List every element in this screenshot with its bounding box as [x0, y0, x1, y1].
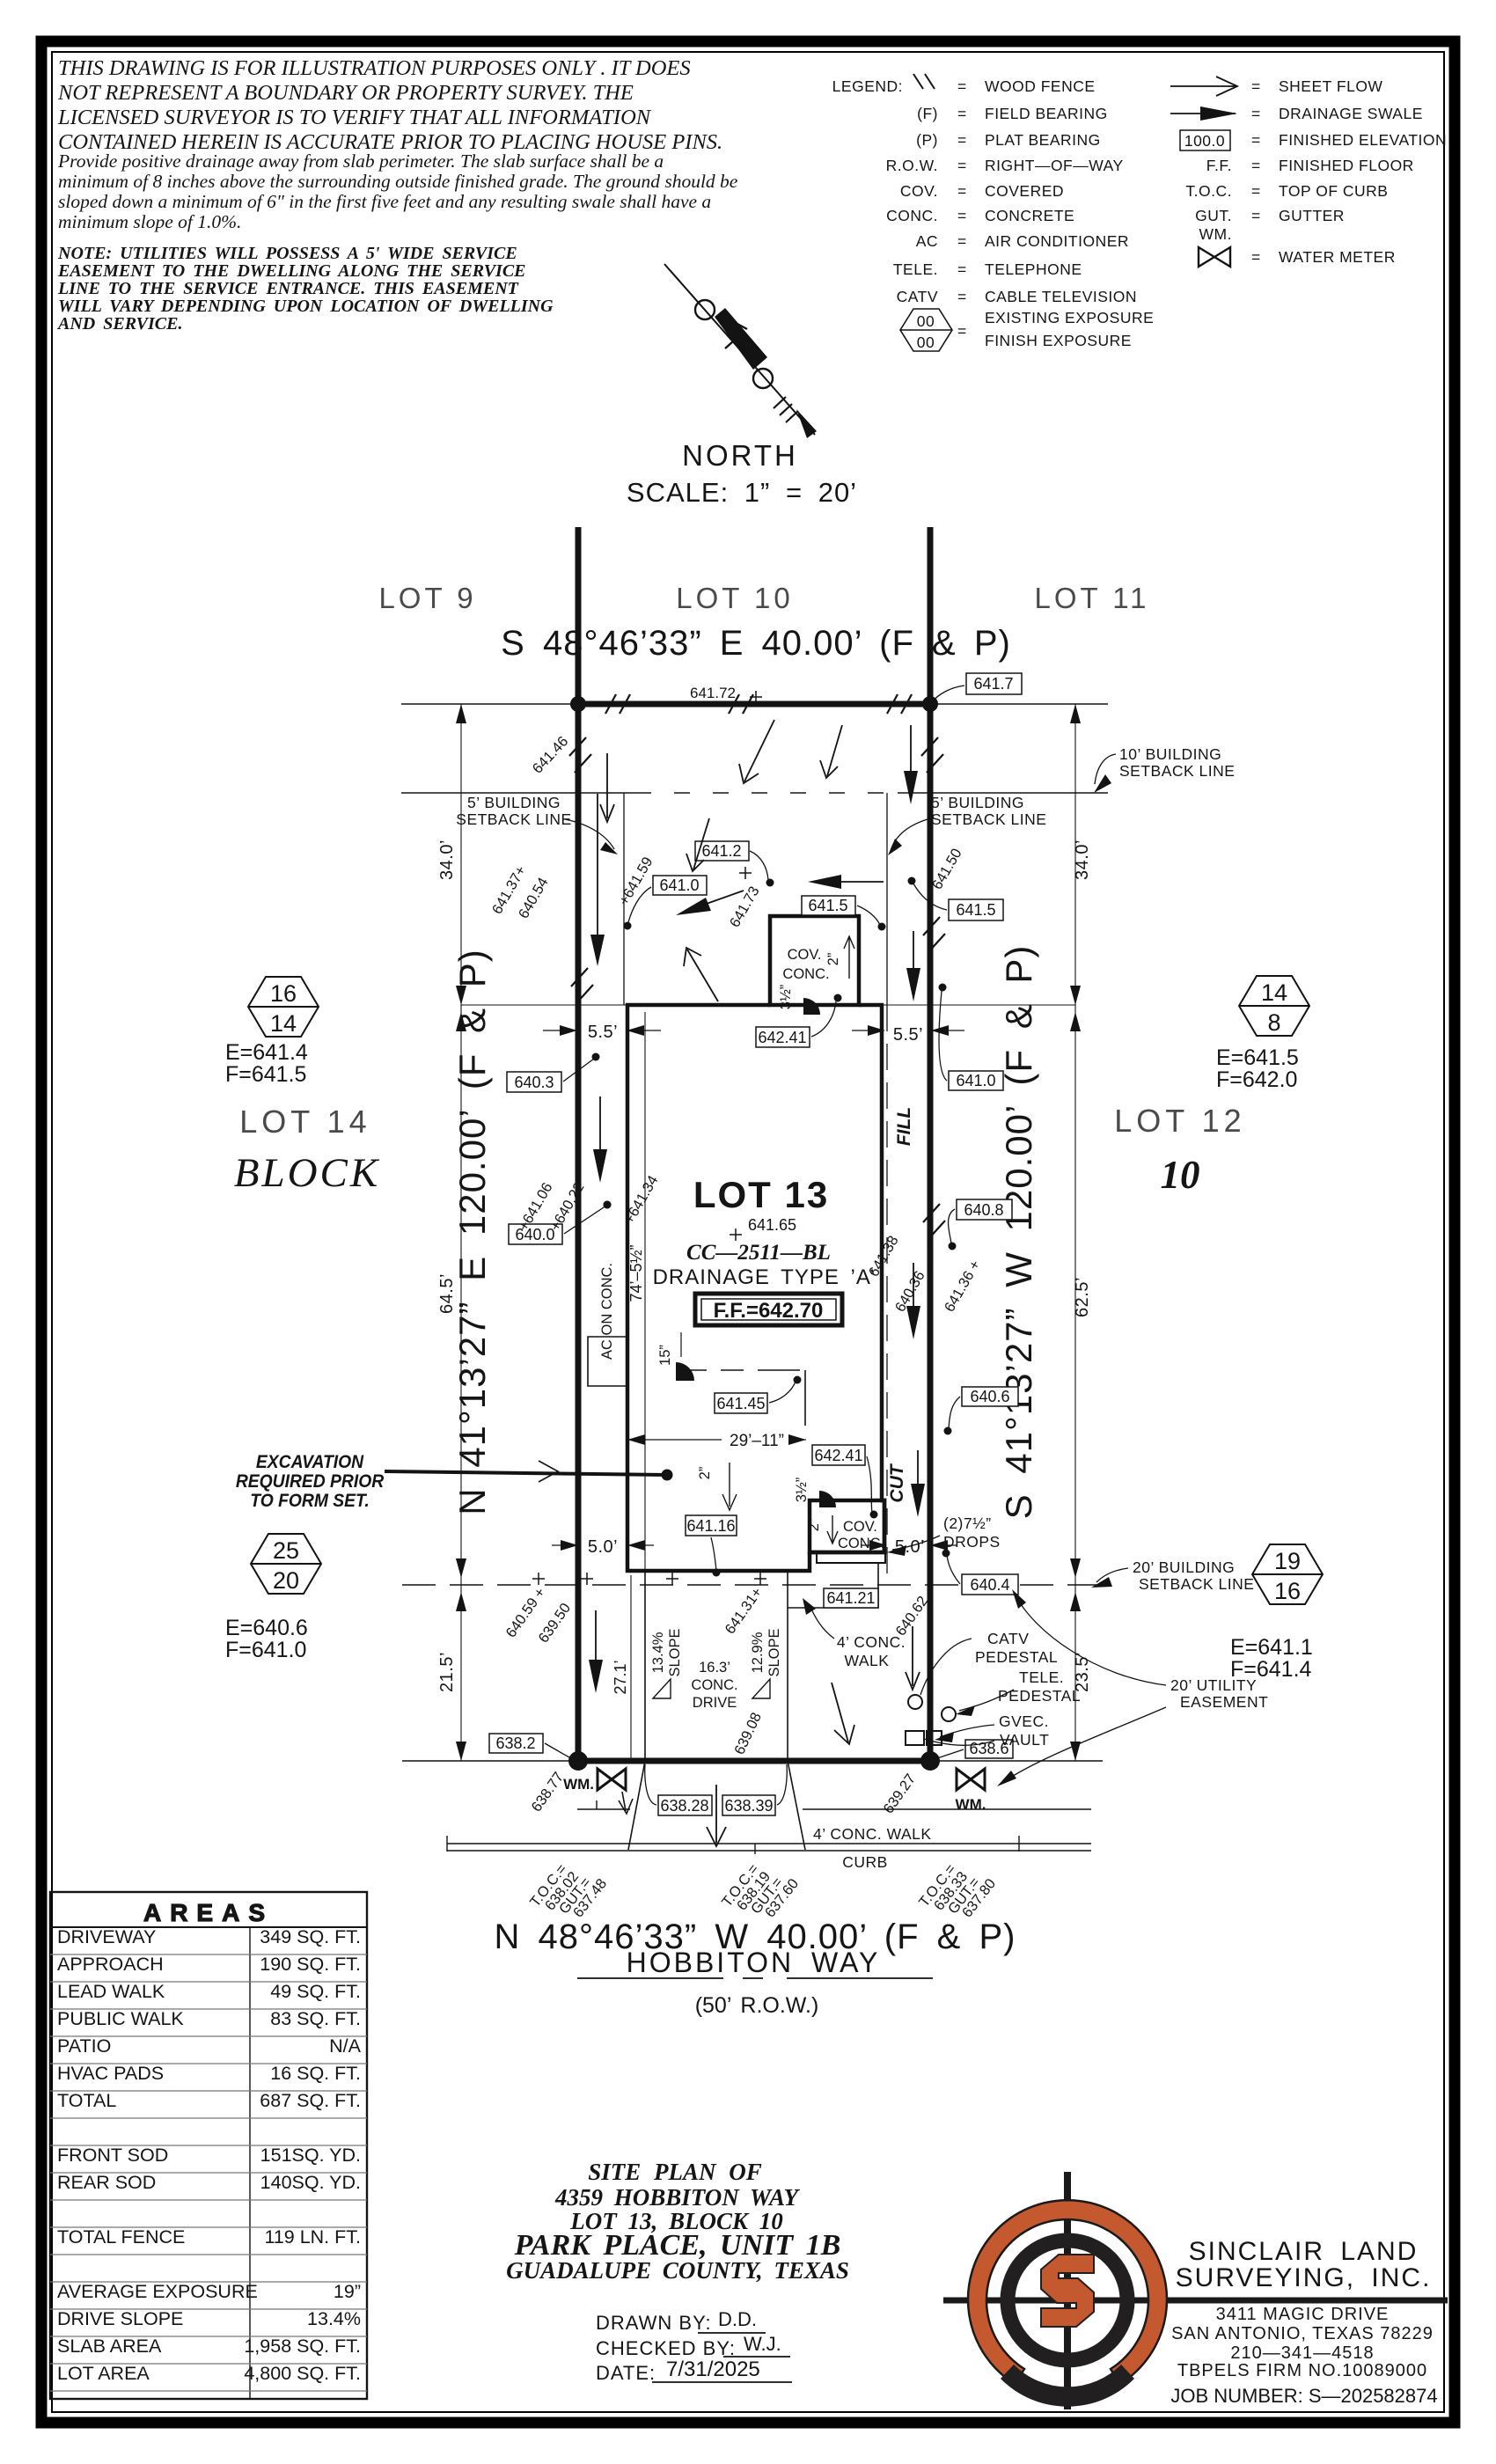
svg-text:DRIVE: DRIVE: [693, 1695, 737, 1711]
svg-text:=: =: [1251, 77, 1261, 95]
svg-text:TELE.: TELE.: [893, 260, 938, 278]
svg-text:LOT AREA: LOT AREA: [57, 2363, 150, 2384]
svg-text:=: =: [957, 77, 967, 95]
svg-text:DRAWN BY:: DRAWN BY:: [596, 2312, 712, 2334]
svg-text:JOB NUMBER: S—202582874: JOB NUMBER: S—202582874: [1170, 2385, 1437, 2407]
svg-text:642.41: 642.41: [814, 1447, 862, 1464]
svg-text:638.2: 638.2: [495, 1734, 535, 1752]
svg-text:=: =: [957, 131, 967, 149]
svg-text:14: 14: [270, 1010, 297, 1037]
svg-text:140SQ. YD.: 140SQ. YD.: [260, 2172, 361, 2193]
svg-text:=: =: [957, 182, 967, 200]
svg-text:D.D.: D.D.: [718, 2308, 757, 2330]
svg-text:10: 10: [1161, 1153, 1200, 1197]
svg-text:TELEPHONE: TELEPHONE: [985, 260, 1082, 278]
svg-text:10’ BUILDING: 10’ BUILDING: [1119, 745, 1221, 763]
svg-text:CATV: CATV: [987, 1630, 1029, 1647]
svg-text:COVERED: COVERED: [985, 182, 1064, 200]
svg-text:GVEC.: GVEC.: [999, 1712, 1049, 1730]
svg-text:AND SERVICE.: AND SERVICE.: [56, 314, 182, 334]
svg-text:5’ BUILDING: 5’ BUILDING: [931, 794, 1024, 811]
svg-text:SURVEYING, INC.: SURVEYING, INC.: [1176, 2263, 1432, 2292]
svg-text:641.16: 641.16: [686, 1517, 735, 1535]
svg-text:Provide positive drainage away: Provide positive drainage away from slab…: [57, 150, 664, 172]
svg-text:SLOPE: SLOPE: [766, 1628, 782, 1676]
svg-text:29’–11”: 29’–11”: [730, 1432, 784, 1450]
svg-text:SLAB AREA: SLAB AREA: [57, 2336, 162, 2357]
svg-text:(F): (F): [917, 105, 938, 122]
svg-text:00: 00: [917, 312, 935, 330]
svg-text:34.0’: 34.0’: [437, 840, 457, 880]
svg-text:CONC.: CONC.: [691, 1677, 737, 1693]
svg-text:R.O.W.: R.O.W.: [886, 157, 938, 174]
svg-text:AC: AC: [916, 232, 938, 250]
svg-text:SETBACK LINE: SETBACK LINE: [456, 810, 571, 828]
svg-text:5.0’: 5.0’: [588, 1537, 618, 1557]
svg-text:FINISH EXPOSURE: FINISH EXPOSURE: [985, 332, 1132, 349]
svg-text:PEDESTAL: PEDESTAL: [998, 1687, 1081, 1705]
svg-text:PUBLIC WALK: PUBLIC WALK: [57, 2008, 184, 2029]
svg-text:100.0: 100.0: [1184, 132, 1225, 150]
svg-text:PLAT BEARING: PLAT BEARING: [985, 131, 1101, 149]
svg-text:HOBBITON WAY: HOBBITON WAY: [627, 1947, 881, 1978]
svg-text:LOT 10: LOT 10: [676, 582, 793, 614]
svg-text:LOT 12: LOT 12: [1114, 1103, 1245, 1139]
svg-text:62.5’: 62.5’: [1073, 1277, 1092, 1317]
svg-text:14: 14: [1261, 979, 1287, 1006]
svg-text:LOT 9: LOT 9: [378, 582, 476, 614]
svg-text:CURB: CURB: [842, 1853, 888, 1871]
svg-text:=: =: [957, 105, 967, 122]
svg-text:21.5’: 21.5’: [437, 1652, 457, 1692]
svg-text:LINE TO THE SERVICE ENTRANCE.: LINE TO THE SERVICE ENTRANCE. THIS EASEM…: [57, 279, 519, 298]
svg-text:GUADALUPE COUNTY, TEXAS: GUADALUPE COUNTY, TEXAS: [506, 2257, 849, 2284]
svg-text:16: 16: [270, 980, 297, 1007]
svg-text:HVAC PADS: HVAC PADS: [57, 2063, 164, 2084]
svg-text:16.3’: 16.3’: [699, 1660, 730, 1676]
svg-text:(50’ R.O.W.): (50’ R.O.W.): [695, 1993, 819, 2018]
svg-text:BLOCK: BLOCK: [234, 1150, 381, 1196]
svg-text:640.6: 640.6: [970, 1388, 1009, 1405]
svg-text:AREAS: AREAS: [143, 1899, 274, 1926]
svg-text:19”: 19”: [334, 2281, 361, 2302]
svg-text:5.5’: 5.5’: [893, 1025, 923, 1045]
svg-text:DATE:: DATE:: [596, 2362, 656, 2384]
svg-text:S 41°13’27” W 120.00’ (F & P): S 41°13’27” W 120.00’ (F & P): [998, 945, 1039, 1520]
svg-text:COV.: COV.: [900, 182, 938, 200]
svg-text:=: =: [1251, 182, 1261, 200]
svg-text:SINCLAIR LAND: SINCLAIR LAND: [1189, 2237, 1419, 2266]
svg-text:RIGHT—OF—WAY: RIGHT—OF—WAY: [985, 157, 1124, 174]
svg-text:FINISHED ELEVATION: FINISHED ELEVATION: [1279, 131, 1447, 149]
svg-text:27.1’: 27.1’: [612, 1660, 629, 1694]
svg-text:VAULT: VAULT: [1000, 1731, 1049, 1749]
svg-text:FINISHED FLOOR: FINISHED FLOOR: [1279, 157, 1414, 174]
svg-text:COV.: COV.: [843, 1519, 877, 1535]
svg-text:5’ BUILDING: 5’ BUILDING: [467, 794, 561, 811]
svg-text:640.4: 640.4: [970, 1576, 1009, 1594]
svg-text:00: 00: [917, 334, 935, 351]
svg-text:13.4%: 13.4%: [307, 2308, 361, 2329]
svg-text:E=640.6: E=640.6: [225, 1616, 308, 1640]
svg-text:CUT: CUT: [887, 1463, 907, 1502]
svg-text:CATV: CATV: [897, 288, 938, 305]
svg-text:641.5: 641.5: [956, 901, 995, 919]
svg-text:THIS DRAWING IS FOR ILLUSTRATI: THIS DRAWING IS FOR ILLUSTRATION PURPOSE…: [58, 56, 691, 80]
svg-text:F=642.0: F=642.0: [1216, 1067, 1297, 1092]
svg-text:641.65: 641.65: [748, 1216, 796, 1234]
svg-text:CONC.: CONC.: [782, 966, 829, 982]
svg-text:641.21: 641.21: [826, 1589, 875, 1607]
svg-text:641.45: 641.45: [716, 1395, 765, 1412]
svg-text:20’ UTILITY: 20’ UTILITY: [1170, 1676, 1257, 1694]
svg-text:SAN ANTONIO, TEXAS 78229: SAN ANTONIO, TEXAS 78229: [1171, 2324, 1434, 2343]
svg-text:LOT 14: LOT 14: [239, 1104, 370, 1140]
svg-text:WM.: WM.: [563, 1776, 594, 1793]
svg-text:2”: 2”: [806, 1519, 822, 1532]
svg-text:WOOD FENCE: WOOD FENCE: [985, 77, 1096, 95]
svg-text:4359 HOBBITON WAY: 4359 HOBBITON WAY: [554, 2184, 801, 2211]
svg-text:EXCAVATION: EXCAVATION: [256, 1452, 364, 1472]
svg-text:NOT REPRESENT A BOUNDARY OR PR: NOT REPRESENT A BOUNDARY OR PROPERTY SUR…: [57, 81, 634, 105]
svg-text:FILL: FILL: [894, 1107, 914, 1146]
svg-text:2”: 2”: [697, 1467, 713, 1480]
svg-text:REAR SOD: REAR SOD: [57, 2172, 156, 2193]
svg-text:N/A: N/A: [329, 2035, 362, 2057]
svg-text:SITE PLAN OF: SITE PLAN OF: [588, 2159, 762, 2185]
svg-text:=: =: [1251, 105, 1261, 122]
svg-text:TOP OF CURB: TOP OF CURB: [1279, 182, 1388, 200]
svg-text:AVERAGE EXPOSURE: AVERAGE EXPOSURE: [57, 2281, 258, 2302]
svg-text:640.3: 640.3: [514, 1074, 554, 1091]
svg-text:REQUIRED PRIOR: REQUIRED PRIOR: [236, 1471, 385, 1492]
svg-text:F=641.5: F=641.5: [225, 1062, 306, 1087]
svg-text:=: =: [1251, 207, 1261, 224]
svg-text:COV.: COV.: [788, 947, 822, 963]
svg-text:LOT 11: LOT 11: [1034, 582, 1149, 614]
svg-text:SETBACK LINE: SETBACK LINE: [1119, 762, 1235, 780]
svg-text:DRIVEWAY: DRIVEWAY: [57, 1926, 156, 1947]
svg-text:7/31/2025: 7/31/2025: [666, 2358, 760, 2381]
svg-text:=: =: [957, 322, 967, 340]
svg-text:=: =: [957, 207, 967, 224]
svg-text:EASEMENT: EASEMENT: [1180, 1693, 1268, 1711]
svg-text:4’ CONC.: 4’ CONC.: [837, 1633, 906, 1651]
svg-text:SCALE: 1” = 20’: SCALE: 1” = 20’: [627, 477, 857, 508]
svg-text:N 41°13’27” E 120.00’ (F & P): N 41°13’27” E 120.00’ (F & P): [451, 949, 493, 1515]
svg-text:190 SQ. FT.: 190 SQ. FT.: [260, 1954, 361, 1975]
svg-text:WM.: WM.: [1199, 225, 1232, 243]
svg-text:SHEET FLOW: SHEET FLOW: [1279, 77, 1382, 95]
svg-text:LICENSED SURVEYOR IS TO VERIFY: LICENSED SURVEYOR IS TO VERIFY THAT ALL …: [57, 106, 652, 129]
svg-text:210—341—4518: 210—341—4518: [1230, 2343, 1374, 2363]
svg-text:EXISTING EXPOSURE: EXISTING EXPOSURE: [985, 309, 1154, 326]
svg-text:DRAINAGE SWALE: DRAINAGE SWALE: [1279, 105, 1423, 122]
svg-text:PEDESTAL: PEDESTAL: [975, 1648, 1058, 1666]
svg-text:16 SQ. FT.: 16 SQ. FT.: [270, 2063, 361, 2084]
svg-text:641.0: 641.0: [659, 876, 699, 894]
svg-text:12.9%: 12.9%: [750, 1632, 766, 1673]
svg-text:F.F.: F.F.: [1206, 157, 1232, 174]
svg-text:1,958 SQ. FT.: 1,958 SQ. FT.: [244, 2336, 361, 2357]
svg-text:LOT 13: LOT 13: [693, 1174, 829, 1215]
svg-text:APPROACH: APPROACH: [57, 1954, 164, 1975]
svg-text:=: =: [1251, 248, 1261, 266]
svg-text:(P): (P): [916, 131, 938, 149]
svg-text:CHECKED BY:: CHECKED BY:: [596, 2337, 736, 2359]
svg-text:=: =: [957, 288, 967, 305]
svg-text:638.39: 638.39: [724, 1797, 773, 1815]
svg-text:3½”: 3½”: [778, 985, 794, 1009]
svg-text:AC ON CONC.: AC ON CONC.: [599, 1263, 615, 1360]
svg-text:TBPELS FIRM NO.10089000: TBPELS FIRM NO.10089000: [1177, 2361, 1427, 2380]
svg-text:FIELD BEARING: FIELD BEARING: [985, 105, 1108, 122]
svg-text:641.72: 641.72: [690, 685, 736, 701]
svg-text:AIR CONDITIONER: AIR CONDITIONER: [985, 232, 1129, 250]
svg-text:SLOPE: SLOPE: [667, 1628, 683, 1676]
svg-text:LEGEND:: LEGEND:: [832, 77, 903, 95]
svg-text:CONCRETE: CONCRETE: [985, 207, 1074, 224]
svg-text:349 SQ. FT.: 349 SQ. FT.: [260, 1926, 361, 1947]
svg-text:WALK: WALK: [845, 1652, 890, 1669]
svg-text:CC—2511—BL: CC—2511—BL: [686, 1241, 831, 1265]
svg-text:687 SQ. FT.: 687 SQ. FT.: [260, 2090, 361, 2111]
svg-text:13.4%: 13.4%: [650, 1632, 666, 1673]
svg-text:641.2: 641.2: [701, 842, 741, 860]
svg-text:74’–5½”: 74’–5½”: [627, 1244, 645, 1302]
svg-text:(2)7½”: (2)7½”: [943, 1514, 992, 1532]
svg-text:E=641.4: E=641.4: [225, 1040, 308, 1065]
svg-text:19: 19: [1274, 1548, 1301, 1574]
svg-text:5.5’: 5.5’: [588, 1023, 618, 1042]
svg-text:=: =: [957, 260, 967, 278]
svg-text:W.J.: W.J.: [744, 2333, 781, 2355]
svg-text:=: =: [1251, 131, 1261, 149]
svg-text:20: 20: [273, 1567, 299, 1594]
svg-text:4’ CONC. WALK: 4’ CONC. WALK: [813, 1825, 932, 1843]
svg-text:49 SQ. FT.: 49 SQ. FT.: [270, 1981, 361, 2002]
svg-text:20’ BUILDING: 20’ BUILDING: [1133, 1558, 1235, 1576]
svg-text:GUTTER: GUTTER: [1279, 207, 1345, 224]
svg-text:640.8: 640.8: [964, 1201, 1003, 1219]
svg-text:DROPS: DROPS: [943, 1533, 1001, 1551]
svg-text:T.O.C.: T.O.C.: [1185, 182, 1232, 200]
svg-text:2”: 2”: [825, 953, 841, 966]
svg-text:15”: 15”: [657, 1345, 673, 1366]
svg-text:WILL VARY DEPENDING UPON LOCAT: WILL VARY DEPENDING UPON LOCATION OF DWE…: [58, 297, 554, 316]
svg-text:TOTAL FENCE: TOTAL FENCE: [57, 2226, 185, 2248]
svg-text:NORTH: NORTH: [682, 439, 798, 472]
svg-text:641.5: 641.5: [808, 897, 847, 914]
svg-text:F=641.0: F=641.0: [225, 1638, 306, 1662]
svg-text:TOTAL: TOTAL: [57, 2090, 116, 2111]
svg-text:=: =: [957, 232, 967, 250]
svg-text:151SQ. YD.: 151SQ. YD.: [260, 2145, 361, 2166]
svg-text:641.0: 641.0: [956, 1072, 995, 1089]
svg-text:SETBACK LINE: SETBACK LINE: [931, 810, 1046, 828]
svg-text:83 SQ. FT.: 83 SQ. FT.: [270, 2008, 361, 2029]
svg-text:E=641.1: E=641.1: [1230, 1635, 1313, 1660]
svg-text:WM.: WM.: [956, 1796, 986, 1813]
svg-text:E=641.5: E=641.5: [1216, 1045, 1299, 1070]
svg-text:25: 25: [273, 1537, 299, 1564]
svg-text:4,800 SQ. FT.: 4,800 SQ. FT.: [244, 2363, 361, 2384]
svg-text:3½”: 3½”: [794, 1478, 810, 1502]
svg-text:CONC.: CONC.: [886, 207, 938, 224]
svg-text:34.0’: 34.0’: [1073, 840, 1092, 880]
svg-text:minimum slope of 1.0%.: minimum slope of 1.0%.: [58, 211, 241, 232]
svg-text:minimum of 8 inches above the: minimum of 8 inches above the surroundin…: [58, 171, 738, 192]
svg-text:PATIO: PATIO: [57, 2035, 111, 2057]
svg-text:TO FORM SET.: TO FORM SET.: [250, 1491, 369, 1511]
svg-text:641.7: 641.7: [973, 675, 1013, 693]
svg-text:119 LN. FT.: 119 LN. FT.: [264, 2226, 361, 2248]
svg-text:TELE.: TELE.: [1019, 1668, 1064, 1686]
svg-text:FRONT SOD: FRONT SOD: [57, 2145, 168, 2166]
svg-text:DRAINAGE TYPE ’A’: DRAINAGE TYPE ’A’: [653, 1265, 876, 1289]
svg-text:638.28: 638.28: [660, 1797, 708, 1815]
svg-text:642.41: 642.41: [758, 1029, 806, 1046]
svg-text:LEAD WALK: LEAD WALK: [57, 1981, 165, 2002]
svg-text:3411 MAGIC DRIVE: 3411 MAGIC DRIVE: [1216, 2305, 1390, 2324]
svg-text:DRIVE SLOPE: DRIVE SLOPE: [57, 2308, 183, 2329]
svg-text:EASEMENT TO THE DWELLING ALONG: EASEMENT TO THE DWELLING ALONG THE SERVI…: [57, 261, 526, 281]
svg-text:CABLE TELEVISION: CABLE TELEVISION: [985, 288, 1137, 305]
svg-text:=: =: [957, 157, 967, 174]
svg-text:=: =: [1251, 157, 1261, 174]
svg-text:16: 16: [1274, 1578, 1301, 1604]
svg-text:NOTE: UTILITIES WILL POSSESS A: NOTE: UTILITIES WILL POSSESS A 5' WIDE S…: [57, 244, 517, 263]
svg-text:GUT.: GUT.: [1195, 207, 1232, 224]
svg-text:8: 8: [1267, 1009, 1280, 1036]
svg-text:F.F.=642.70: F.F.=642.70: [714, 1299, 824, 1323]
svg-text:sloped down a minimum of 6" in: sloped down a minimum of 6" in the first…: [58, 191, 711, 212]
svg-text:SETBACK LINE: SETBACK LINE: [1139, 1575, 1254, 1593]
svg-text:WATER METER: WATER METER: [1279, 248, 1396, 266]
